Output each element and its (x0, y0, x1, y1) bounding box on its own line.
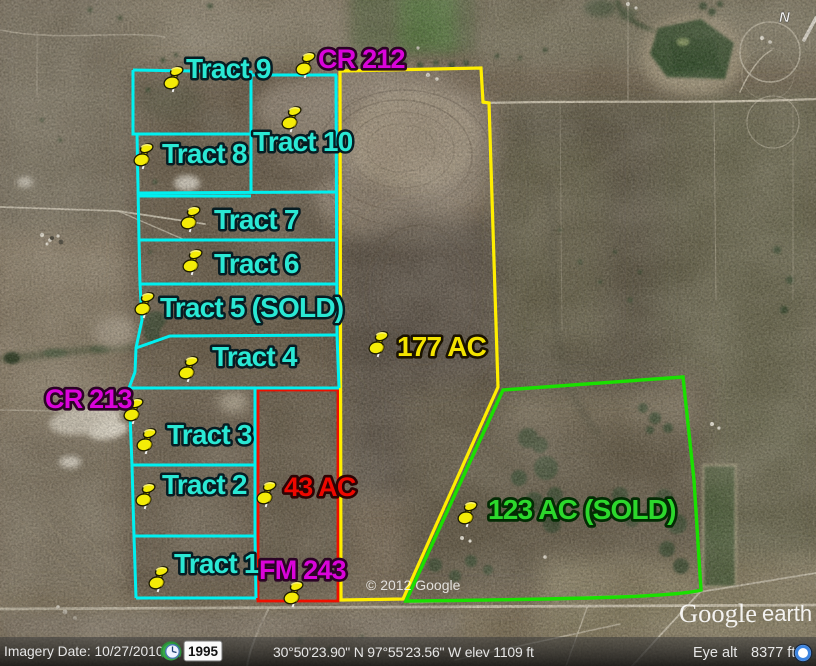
svg-text:Tract 9: Tract 9 (186, 53, 271, 84)
svg-text:© 2012 Google: © 2012 Google (366, 577, 461, 593)
svg-text:Eye alt: Eye alt (693, 645, 737, 661)
svg-text:Tract 3: Tract 3 (167, 419, 252, 450)
svg-text:FM 243: FM 243 (259, 555, 347, 585)
svg-text:Tract 5 (SOLD): Tract 5 (SOLD) (160, 292, 343, 323)
svg-text:N: N (779, 9, 791, 26)
svg-text:earth: earth (762, 601, 812, 626)
svg-text:30°50'23.90" N 97°55'23.56" W: 30°50'23.90" N 97°55'23.56" W elev 1109 … (273, 644, 534, 660)
svg-text:1995: 1995 (188, 644, 219, 659)
svg-text:Tract 8: Tract 8 (162, 138, 247, 169)
svg-text:Tract 6: Tract 6 (214, 248, 299, 279)
svg-text:177 AC: 177 AC (397, 331, 487, 362)
svg-text:Tract 2: Tract 2 (162, 469, 247, 500)
svg-text:CR 213: CR 213 (45, 384, 133, 414)
svg-text:Tract 1: Tract 1 (174, 548, 259, 579)
svg-text:Imagery Date: 10/27/2010: Imagery Date: 10/27/2010 (4, 644, 164, 659)
svg-text:CR 212: CR 212 (318, 44, 405, 74)
svg-text:Tract 4: Tract 4 (212, 341, 298, 372)
svg-text:Google: Google (679, 598, 757, 628)
svg-text:123 AC (SOLD): 123 AC (SOLD) (488, 494, 676, 525)
svg-text:43 AC: 43 AC (284, 472, 356, 502)
svg-text:Tract 10: Tract 10 (253, 126, 353, 157)
svg-text:8377 ft: 8377 ft (751, 645, 795, 661)
svg-text:Tract 7: Tract 7 (214, 204, 299, 235)
